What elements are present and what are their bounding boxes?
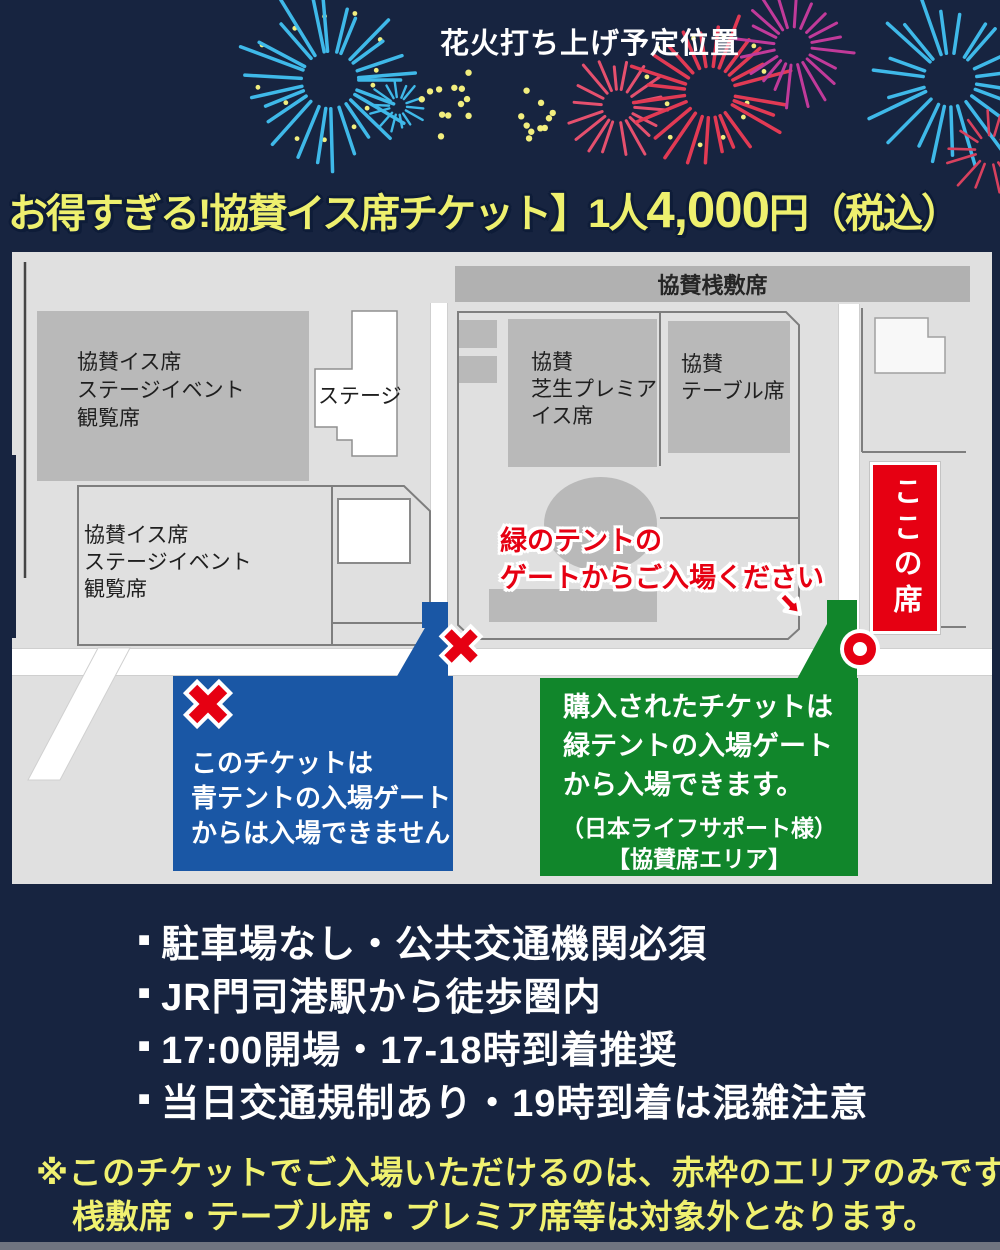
chair-seat-lower-label: 協賛イス席 ステージイベント 観覧席 — [84, 522, 252, 603]
sajiki-seating-label: 協賛桟敷席 — [657, 268, 767, 300]
note-row: ■ 17:00開場・17-18時到着推奨 — [138, 1020, 868, 1073]
blue-gate-callout: このチケットは 青テントの入場ゲート からは入場できません — [173, 676, 453, 871]
note-text: 当日交通規制あり・19時到着は混雑注意 — [161, 1072, 868, 1127]
bullet-icon: ■ — [138, 1088, 151, 1111]
stage-label: ステージ — [318, 383, 402, 410]
road-horizontal — [12, 648, 992, 676]
headline-prefix: お得すぎる!協賛イス席チケット】1人 — [8, 192, 646, 236]
chair-seat-upper-label: 協賛イス席 ステージイベント 観覧席 — [77, 349, 245, 433]
warning-line-2: 桟敷席・テーブル席・プレミア席等は対象外となります。 — [72, 1190, 937, 1238]
note-text: 駐車場なし・公共交通機関必須 — [161, 913, 707, 968]
bottom-strip — [0, 1242, 1000, 1250]
blue-gate-callout-text: このチケットは 青テントの入場ゲート からは入場できません — [191, 746, 451, 851]
note-row: ■ JR門司港駅から徒歩圏内 — [138, 967, 868, 1020]
here-seat-box: ここの席 — [870, 462, 940, 634]
lawn-premium-label: 協賛 芝生プレミア イス席 — [531, 349, 657, 430]
headline: お得すぎる!協賛イス席チケット】1人4,000円（税込） — [8, 180, 996, 239]
road-vertical-right — [838, 304, 860, 648]
map-edge-notch — [0, 455, 16, 638]
road-vertical-left — [430, 303, 448, 648]
note-text: 17:00開場・17-18時到着推奨 — [161, 1019, 677, 1074]
note-row: ■ 当日交通規制あり・19時到着は混雑注意 — [138, 1073, 868, 1126]
bullet-icon: ■ — [138, 982, 151, 1005]
table-seat-label: 協賛 テーブル席 — [681, 351, 785, 405]
flyer: 花火打ち上げ予定位置 お得すぎる!協賛イス席チケット】1人4,000円（税込） … — [0, 0, 1000, 1250]
green-gate-instruction: 緑のテントの ゲートからご入場ください — [500, 523, 824, 597]
small-building-square — [337, 498, 411, 564]
access-notes: ■ 駐車場なし・公共交通機関必須 ■ JR門司港駅から徒歩圏内 ■ 17:00開… — [138, 914, 868, 1126]
warning-line-1: ※このチケットでご入場いただけるのは、赤枠のエリアのみです。 — [36, 1146, 1000, 1194]
here-seat-label: ここの席 — [884, 476, 926, 620]
small-block-2 — [458, 356, 497, 383]
sponsor-area-note: 【協賛席エリア】 — [540, 840, 858, 874]
small-block-1 — [458, 320, 497, 348]
green-gate-callout-text: 購入されたチケットは 緑テントの入場ゲート から入場できます。 — [563, 688, 833, 805]
note-text: JR門司港駅から徒歩圏内 — [161, 966, 602, 1021]
headline-price: 4,000 — [646, 181, 769, 238]
headline-suffix: 円（税込） — [769, 192, 959, 236]
note-row: ■ 駐車場なし・公共交通機関必須 — [138, 914, 868, 967]
sajiki-seating-bar: 協賛桟敷席 — [455, 266, 970, 302]
fireworks-position-label: 花火打ち上げ予定位置 — [440, 20, 740, 62]
bullet-icon: ■ — [138, 1035, 151, 1058]
bullet-icon: ■ — [138, 929, 151, 952]
sponsor-name-note: （日本ライフサポート様） — [540, 809, 858, 843]
green-gate-callout: 購入されたチケットは 緑テントの入場ゲート から入場できます。 （日本ライフサポ… — [540, 678, 858, 876]
